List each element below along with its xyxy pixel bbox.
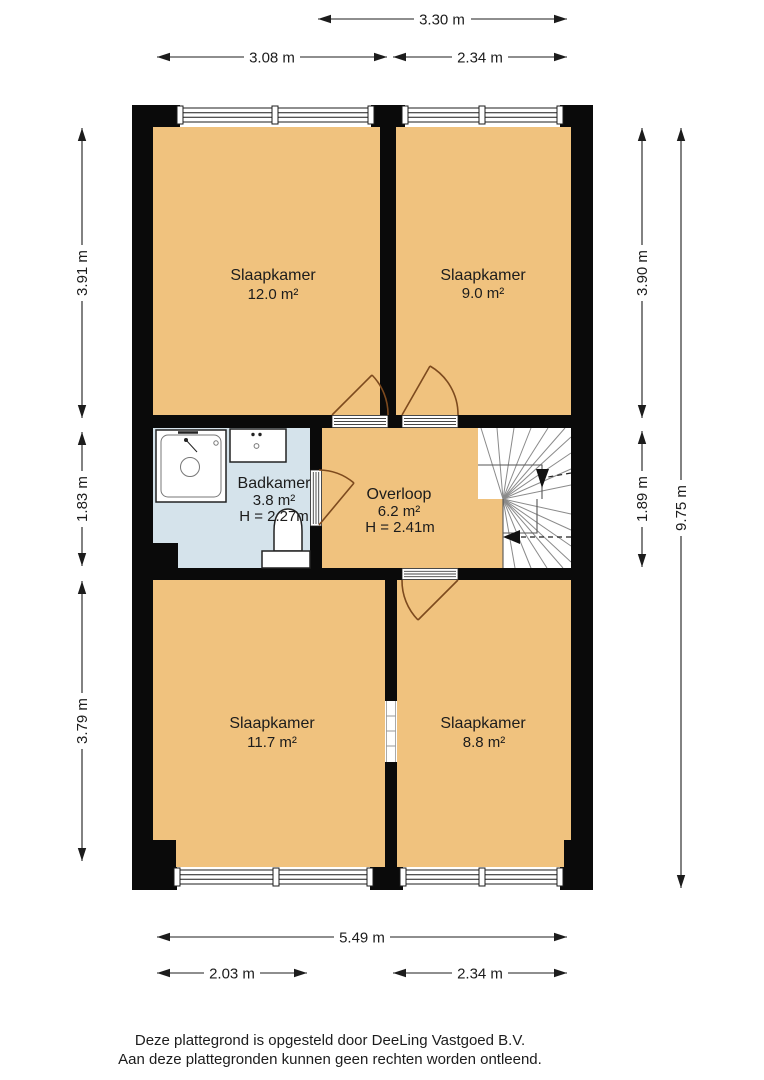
wall-bottom-segment	[560, 867, 593, 890]
wall-mid-lower-segment	[458, 568, 571, 580]
window-top-left	[177, 106, 374, 124]
threshold	[311, 470, 322, 526]
room-label-name: Slaapkamer	[440, 715, 526, 732]
dimension-top-left: 3.08 m	[157, 49, 387, 66]
dimension-left-middle: 1.83 m	[74, 432, 91, 566]
room-label-name: Slaapkamer	[229, 715, 315, 732]
window-top-right	[402, 106, 563, 124]
svg-text:3.90 m: 3.90 m	[634, 250, 651, 296]
room-label-area: 9.0 m²	[462, 285, 505, 302]
svg-text:2.34 m: 2.34 m	[457, 965, 503, 982]
room-label-area: 8.8 m²	[463, 734, 506, 751]
svg-text:2.34 m: 2.34 m	[457, 49, 503, 66]
wall-top-segment	[371, 105, 405, 127]
room-label-name: Overloop	[367, 486, 432, 503]
floorplan-canvas: Slaapkamer 12.0 m² Slaapkamer 9.0 m² Bad…	[0, 0, 764, 1080]
dimension-right-top: 3.90 m	[634, 128, 651, 418]
room-label-area: 3.8 m²	[253, 492, 296, 509]
shower	[156, 430, 226, 502]
wall-bottom-segment	[370, 867, 403, 890]
room-label-name: Slaapkamer	[440, 267, 526, 284]
wall-mid-upper-segment	[388, 415, 402, 428]
staircase	[478, 428, 571, 568]
stair-landing-floor	[478, 499, 503, 568]
wall-gap	[385, 701, 397, 762]
threshold	[402, 416, 458, 428]
wall-right	[571, 105, 593, 890]
room-label-height: H = 2.27m	[239, 508, 309, 525]
svg-text:9.75 m: 9.75 m	[673, 485, 690, 531]
dimension-right-total: 9.75 m	[673, 128, 690, 888]
room-label-area: 11.7 m²	[247, 734, 297, 751]
floorplan-page: Slaapkamer 12.0 m² Slaapkamer 9.0 m² Bad…	[0, 0, 764, 1080]
wall-top-room-divider	[380, 127, 396, 415]
wall-badkamer-segment	[310, 526, 322, 568]
threshold	[332, 416, 388, 428]
svg-text:1.83 m: 1.83 m	[74, 476, 91, 522]
footer-line-1: Deze plattegrond is opgesteld door DeeLi…	[135, 1032, 525, 1049]
room-label-area: 12.0 m²	[248, 286, 299, 303]
dimension-top-right: 2.34 m	[393, 49, 567, 66]
wall-mid-upper-segment	[458, 415, 571, 428]
svg-text:1.89 m: 1.89 m	[634, 476, 651, 522]
wall-bottom-segment	[132, 867, 177, 890]
dimension-top-overloop: 3.30 m	[318, 11, 567, 28]
sink	[230, 429, 286, 462]
wall-left	[132, 105, 153, 890]
room-label-height: H = 2.41m	[365, 519, 435, 536]
svg-text:3.08 m: 3.08 m	[249, 49, 295, 66]
dimension-bottom-total: 5.49 m	[157, 929, 567, 946]
wall-badkamer-segment	[310, 428, 322, 470]
svg-text:3.79 m: 3.79 m	[74, 698, 91, 744]
window-bottom-right	[400, 868, 563, 886]
window-bottom-left	[174, 868, 373, 886]
dimension-bottom-right: 2.34 m	[393, 965, 567, 982]
footer-line-2: Aan deze plattegronden kunnen geen recht…	[118, 1051, 542, 1068]
room-label-name: Badkamer	[238, 475, 312, 492]
threshold	[402, 569, 458, 580]
footer: Deze plattegrond is opgesteld door DeeLi…	[118, 1032, 542, 1068]
wall-mid-upper-segment	[153, 415, 332, 428]
wall-top-segment	[132, 105, 180, 127]
svg-text:2.03 m: 2.03 m	[209, 965, 255, 982]
wall-mid-lower-segment	[153, 568, 402, 580]
room-label-name: Slaapkamer	[230, 267, 316, 284]
svg-text:5.49 m: 5.49 m	[339, 929, 385, 946]
svg-text:3.30 m: 3.30 m	[419, 11, 465, 28]
dimension-left-bottom: 3.79 m	[74, 581, 91, 861]
wall-badkamer-stub	[153, 543, 178, 570]
room-label-area: 6.2 m²	[378, 503, 421, 520]
wall-top-segment	[560, 105, 593, 127]
dimension-bottom-left: 2.03 m	[157, 965, 307, 982]
svg-text:3.91 m: 3.91 m	[74, 250, 91, 296]
dimension-left-top: 3.91 m	[74, 128, 91, 418]
dimension-right-middle: 1.89 m	[634, 431, 651, 567]
